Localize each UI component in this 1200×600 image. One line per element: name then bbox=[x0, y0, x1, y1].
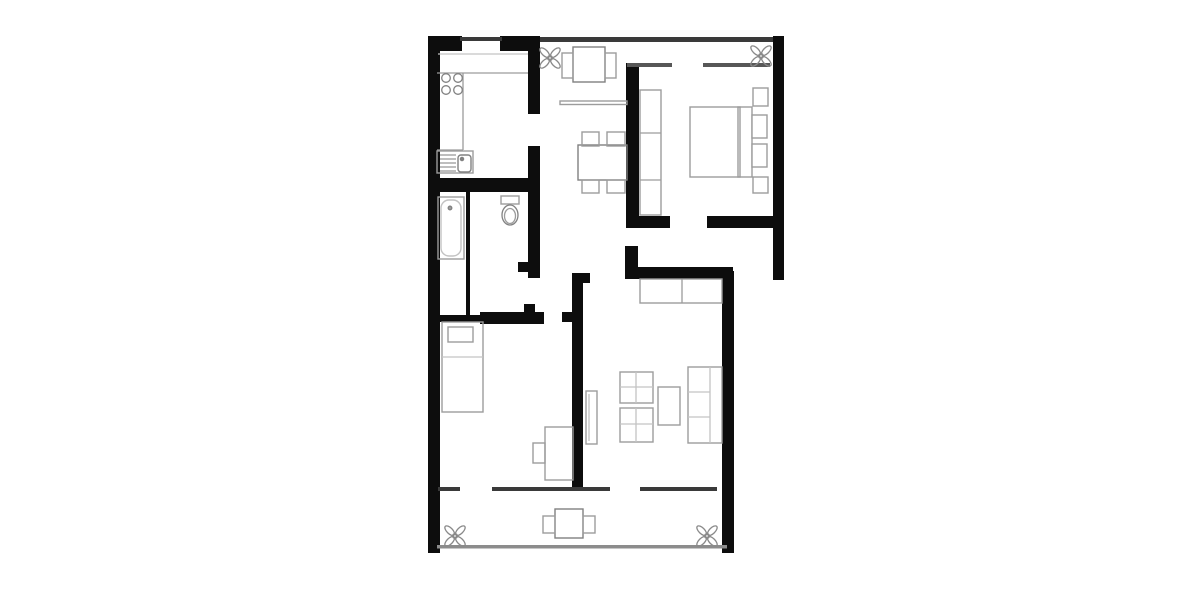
wall-left-exterior bbox=[428, 38, 440, 553]
bathtub-drain-dot bbox=[448, 206, 452, 210]
wall-hall-stub bbox=[562, 312, 572, 322]
entrance-door-line bbox=[460, 37, 502, 41]
canvas-background bbox=[0, 0, 1200, 600]
bedroom-pillow-2 bbox=[752, 144, 767, 167]
floor-plan-svg bbox=[0, 0, 1200, 600]
wall-kitchen-south bbox=[428, 178, 530, 192]
wall-living-west-head bbox=[572, 273, 590, 283]
wall-bedroom-south-a bbox=[626, 216, 670, 228]
balcony-railing bbox=[437, 545, 727, 549]
wall-living-east bbox=[722, 271, 734, 553]
wall-top-left bbox=[428, 36, 462, 51]
wall-living-north bbox=[625, 267, 733, 279]
wall-living-north-stub bbox=[625, 246, 638, 268]
window-band-top bbox=[540, 37, 773, 42]
bedroom-pillow-1 bbox=[752, 115, 767, 138]
wall-bath-south-b bbox=[480, 312, 544, 324]
wall-kitchen-east-lower bbox=[528, 146, 540, 278]
balcony-window-b bbox=[492, 487, 610, 491]
wall-bedroom-south-b bbox=[707, 216, 775, 228]
bedroom-window-east bbox=[703, 63, 770, 67]
child-bed-pillow bbox=[448, 327, 473, 342]
floor-plan bbox=[0, 0, 1200, 600]
wall-bath-south-a bbox=[428, 315, 484, 322]
wall-right-exterior bbox=[773, 36, 784, 280]
wall-bath-door-jamb-s bbox=[524, 304, 535, 313]
balcony-window-c bbox=[640, 487, 717, 491]
balcony-window-a bbox=[438, 487, 460, 491]
kitchen-sink-basin bbox=[458, 155, 471, 172]
sink-faucet-dot bbox=[460, 157, 463, 160]
wall-bath-door-jamb-n bbox=[518, 262, 528, 272]
wall-kitchen-east-upper bbox=[528, 36, 540, 114]
wall-bedroom-west bbox=[626, 63, 639, 228]
wall-bath-partition bbox=[466, 192, 470, 318]
bedroom-window-west bbox=[627, 63, 672, 67]
